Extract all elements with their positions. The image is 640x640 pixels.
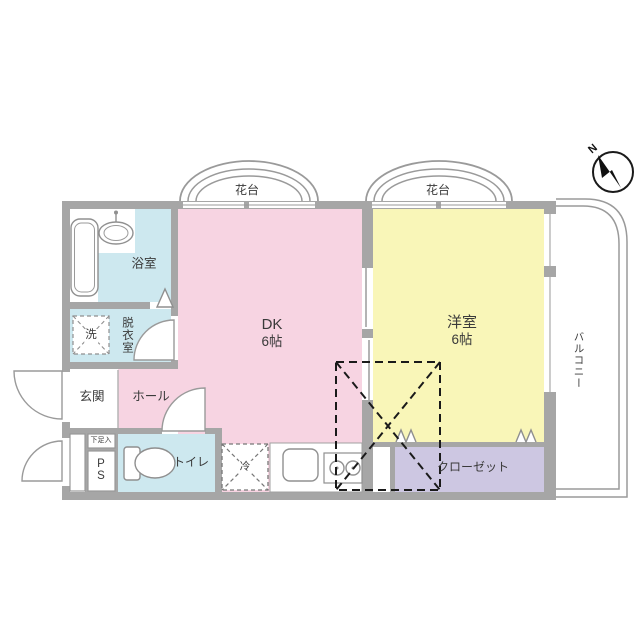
bathroom-label: 浴室: [131, 257, 156, 272]
closet-door-mark: [516, 430, 536, 442]
flower-stand-left-label: 花台: [235, 183, 259, 197]
pipe-space-label: PS: [95, 458, 107, 482]
closet-label: クローゼット: [437, 460, 509, 474]
closet-door-mark: [396, 430, 416, 442]
bathtub-icon: [70, 209, 135, 302]
sliding-door: [362, 268, 373, 400]
dk-room-label: DK 6帖: [261, 316, 282, 350]
kitchen-sink-icon: [283, 449, 318, 481]
shoe-box-label: 下足入: [91, 437, 112, 445]
bathroom-door-mark: [157, 289, 173, 307]
balcony-label: バルコニー: [572, 331, 587, 389]
western-room-size: 6帖: [447, 332, 477, 348]
dk-room-name: DK: [261, 316, 282, 334]
meter-door-swing: [22, 441, 62, 481]
western-room-label: 洋室 6帖: [447, 314, 477, 348]
western-room-name: 洋室: [447, 314, 477, 332]
entrance-label: 玄関: [79, 390, 104, 405]
kitchen-counter: [270, 443, 362, 492]
toilet-label: トイレ: [173, 455, 209, 469]
laundry-label: 洗: [84, 329, 98, 343]
dressing-door-swing: [134, 320, 174, 360]
plan-linework: N: [0, 0, 640, 640]
dressing-room-label: 脱衣室: [119, 316, 135, 354]
floor-plan: N 花台 花台 浴室 洗 脱衣室 玄関 ホール 下足入 PS トイレ 冷 DK …: [0, 0, 640, 640]
entrance-door-swing: [14, 371, 62, 419]
dk-room-size: 6帖: [261, 334, 282, 350]
entrance-step-cell: [70, 434, 85, 491]
hall-label: ホール: [132, 390, 170, 405]
toilet-icon: [124, 447, 175, 480]
balcony-railing: [556, 199, 627, 497]
compass: N: [586, 142, 633, 192]
refrigerator-label: 冷: [239, 461, 252, 474]
flower-stand-right-label: 花台: [426, 183, 450, 197]
compass-north-label: N: [586, 142, 600, 156]
